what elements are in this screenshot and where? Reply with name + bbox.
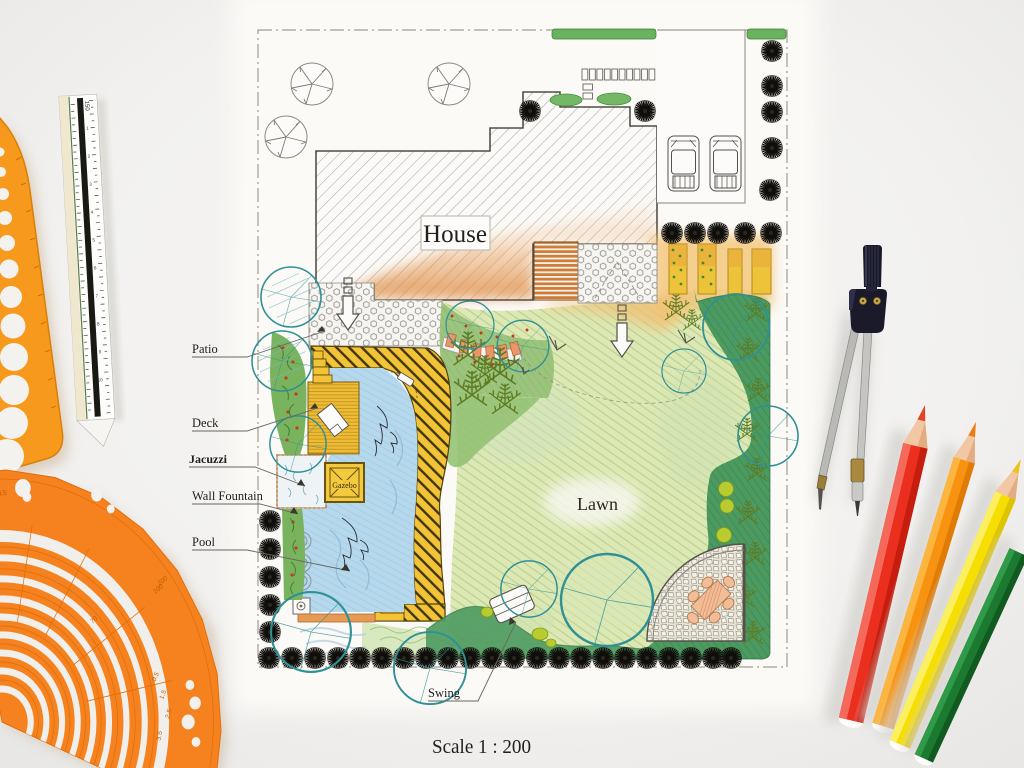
svg-text:Pool: Pool xyxy=(192,535,215,549)
svg-text:Scale 1 : 200: Scale 1 : 200 xyxy=(432,736,531,758)
svg-text:Deck: Deck xyxy=(192,416,219,430)
svg-text:10: 10 xyxy=(98,377,104,382)
svg-text:150: 150 xyxy=(83,101,90,112)
svg-text:House: House xyxy=(423,221,487,248)
svg-text:Gazebo: Gazebo xyxy=(332,481,356,490)
svg-text:4.5: 4.5 xyxy=(0,489,7,498)
svg-text:Swing: Swing xyxy=(428,686,461,700)
svg-text:Wall Fountain: Wall Fountain xyxy=(192,489,264,503)
svg-text:Patio: Patio xyxy=(192,342,218,356)
svg-text:Jacuzzi: Jacuzzi xyxy=(189,452,228,466)
svg-text:Lawn: Lawn xyxy=(577,494,618,514)
